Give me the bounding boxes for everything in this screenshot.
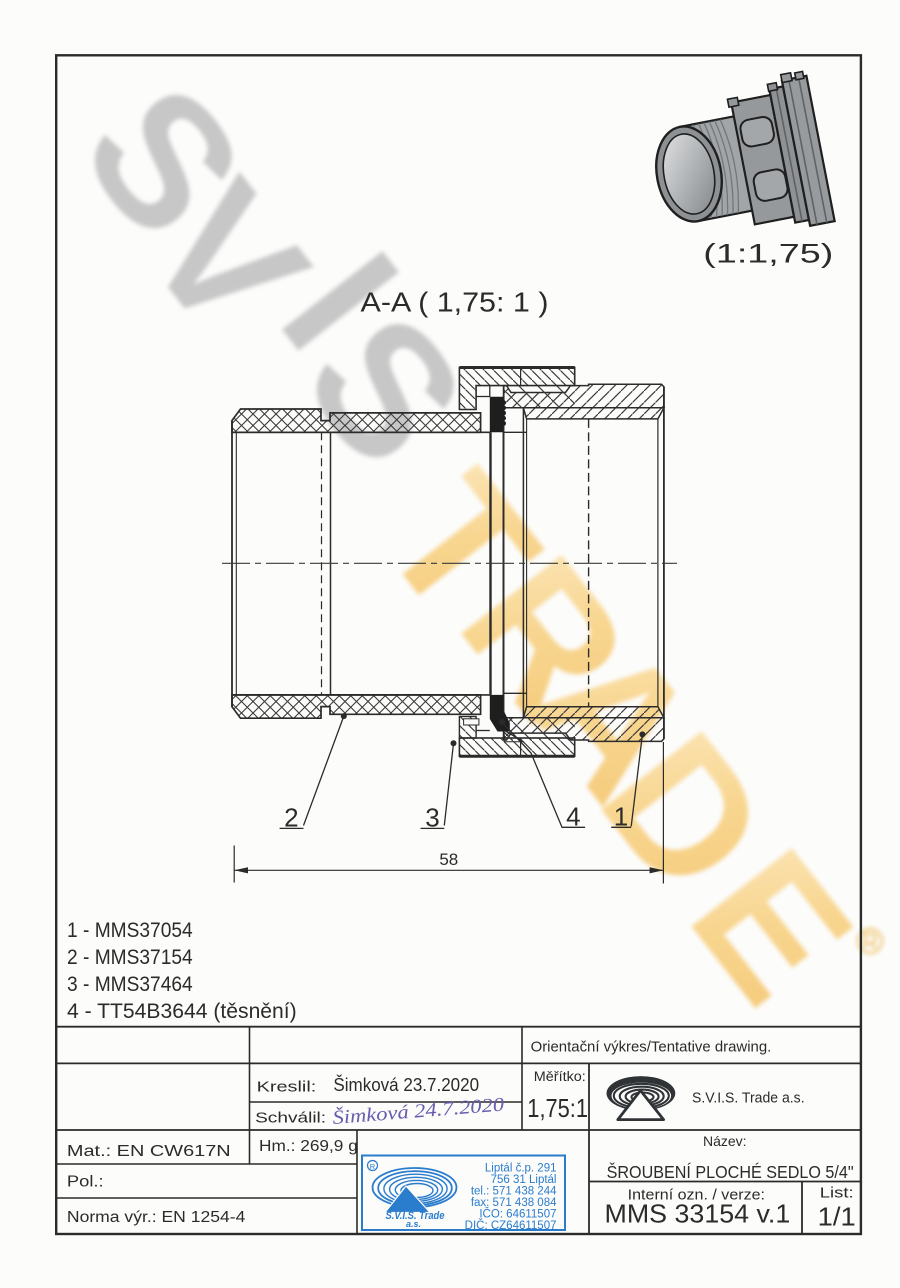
- svg-text:Šimková 23.7.2020: Šimková 23.7.2020: [333, 1074, 479, 1095]
- svg-text:R: R: [370, 1162, 376, 1171]
- svg-text:Hm.: 269,9 g: Hm.: 269,9 g: [259, 1138, 358, 1155]
- svg-text:S.V.I.S. Trade a.s.: S.V.I.S. Trade a.s.: [692, 1090, 805, 1106]
- svg-text:3 - MMS37464: 3 - MMS37464: [67, 973, 193, 996]
- svg-text:a.s.: a.s.: [406, 1219, 421, 1229]
- svg-text:1,75:1: 1,75:1: [527, 1093, 588, 1123]
- svg-text:tel.: 571 438 244: tel.: 571 438 244: [471, 1186, 557, 1198]
- svg-text:4: 4: [566, 802, 580, 832]
- svg-text:Kreslil:: Kreslil:: [257, 1079, 317, 1096]
- svg-text:Orientační výkres/Tentative dr: Orientační výkres/Tentative drawing.: [531, 1040, 772, 1056]
- svg-text:A-A ( 1,75: 1 ): A-A ( 1,75: 1 ): [361, 287, 549, 318]
- svg-text:Pol.:: Pol.:: [67, 1173, 104, 1190]
- svg-text:Měřítko:: Měřítko:: [534, 1069, 586, 1084]
- svg-text:2 - MMS37154: 2 - MMS37154: [67, 946, 193, 969]
- svg-text:Norma výr.: EN 1254-4: Norma výr.: EN 1254-4: [67, 1209, 246, 1226]
- svg-text:2: 2: [284, 803, 298, 833]
- svg-text:756 31 Liptál: 756 31 Liptál: [491, 1174, 557, 1186]
- svg-text:IČO: 64611507: IČO: 64611507: [479, 1208, 556, 1221]
- svg-text:Šimková 24.7.2020: Šimková 24.7.2020: [332, 1094, 505, 1129]
- svg-text:fax: 571 438 084: fax: 571 438 084: [471, 1197, 557, 1209]
- svg-text:ŠROUBENÍ PLOCHÉ SEDLO 5/4": ŠROUBENÍ PLOCHÉ SEDLO 5/4": [607, 1161, 854, 1182]
- svg-text:1: 1: [614, 802, 628, 832]
- svg-text:Schválil:: Schválil:: [255, 1110, 326, 1127]
- svg-text:3: 3: [425, 803, 439, 833]
- svg-text:DIČ: CZ64611507: DIČ: CZ64611507: [465, 1219, 557, 1232]
- svg-text:Mat.: EN CW617N: Mat.: EN CW617N: [67, 1143, 231, 1160]
- svg-text:1/1: 1/1: [818, 1202, 856, 1232]
- svg-text:(1:1,75): (1:1,75): [703, 239, 833, 269]
- svg-text:Název:: Název:: [703, 1133, 747, 1149]
- svg-text:List:: List:: [820, 1186, 854, 1202]
- svg-text:Liptál č.p. 291: Liptál č.p. 291: [485, 1163, 557, 1175]
- svg-text:58: 58: [439, 850, 458, 869]
- svg-text:1 - MMS37054: 1 - MMS37054: [67, 919, 193, 942]
- svg-text:4 - TT54B3644 (těsnění): 4 - TT54B3644 (těsnění): [67, 1000, 297, 1023]
- svg-text:MMS 33154 v.1: MMS 33154 v.1: [605, 1199, 791, 1229]
